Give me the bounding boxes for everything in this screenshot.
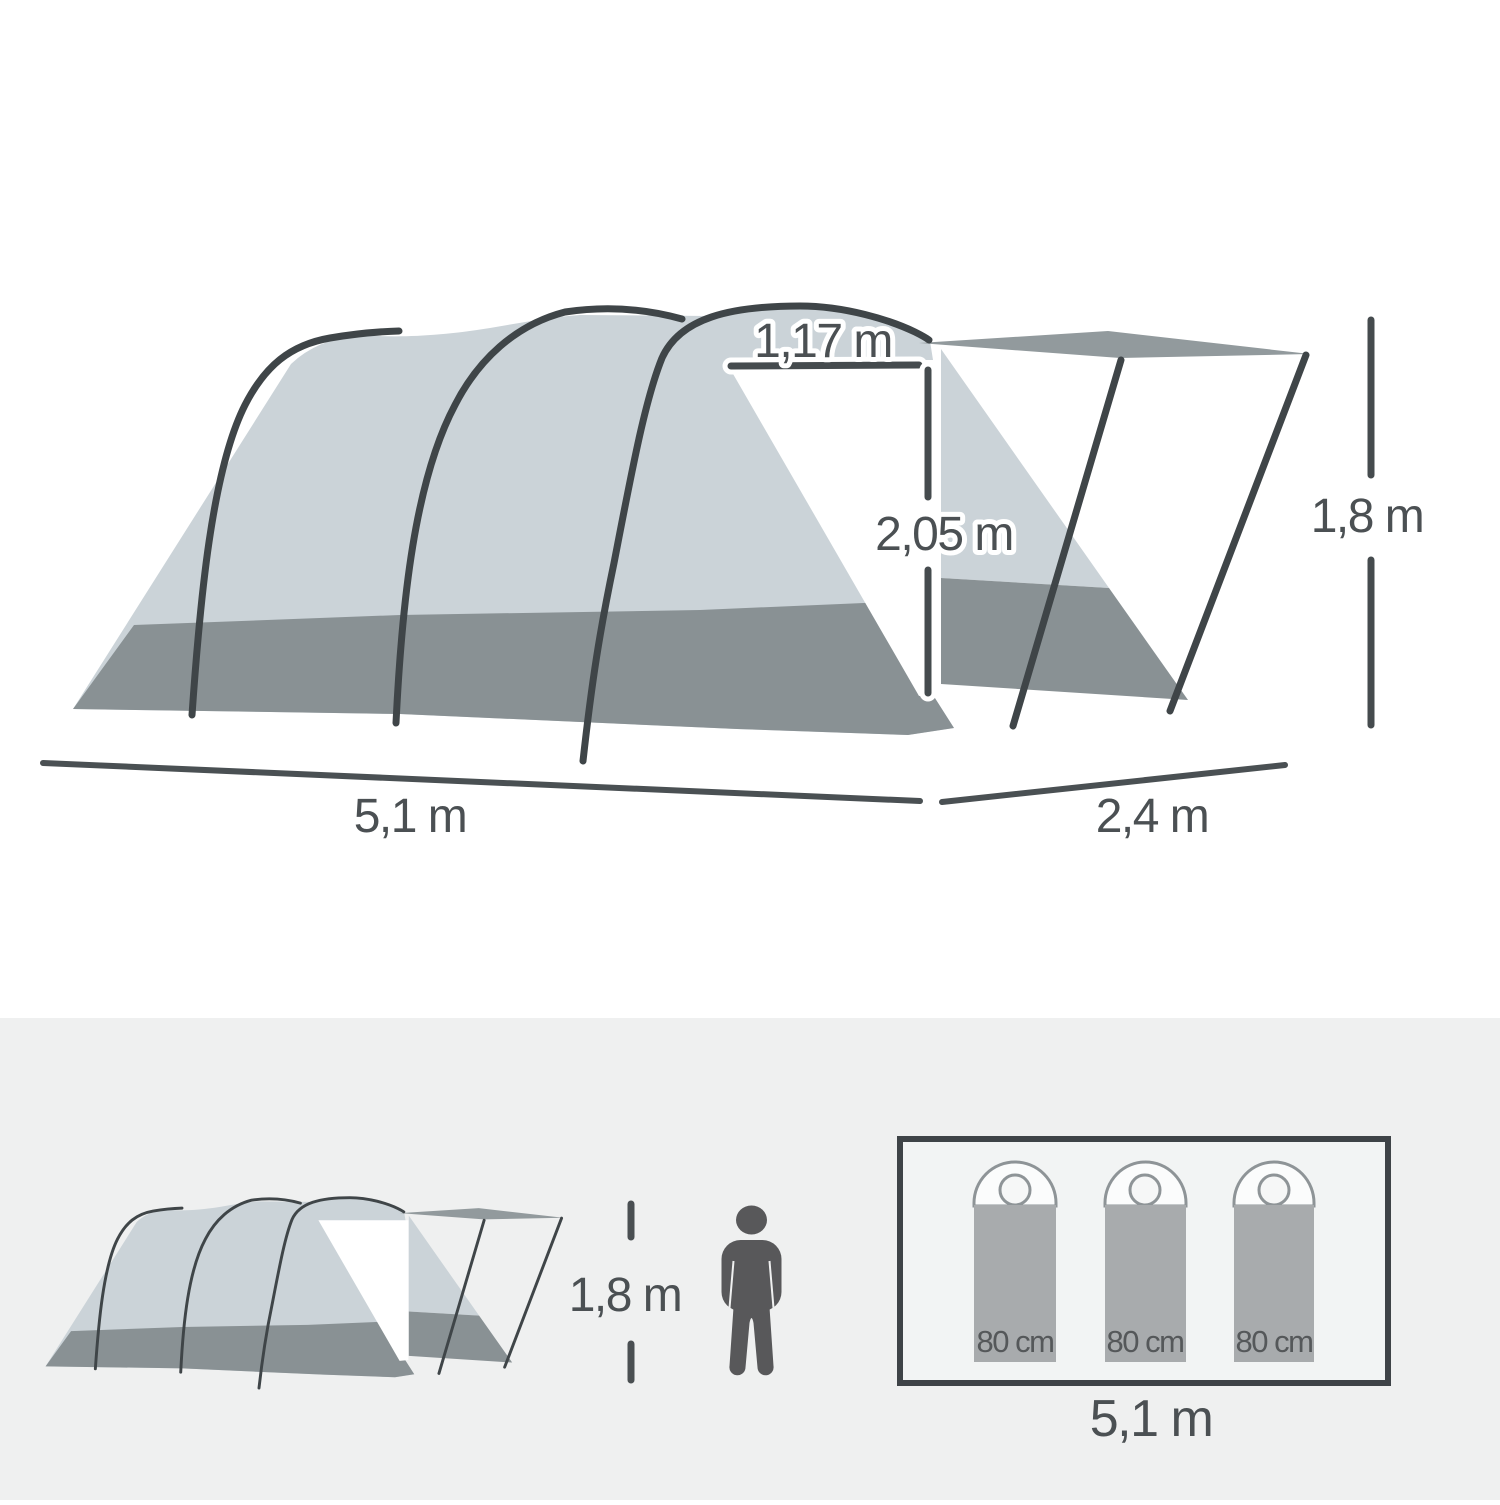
svg-text:1,8 m: 1,8 m: [569, 1269, 682, 1322]
svg-text:80 cm: 80 cm: [977, 1324, 1054, 1359]
svg-text:2,05 m: 2,05 m: [875, 508, 1013, 561]
svg-text:5,1 m: 5,1 m: [354, 790, 467, 843]
svg-text:1,8 m: 1,8 m: [1311, 490, 1424, 543]
svg-text:80 cm: 80 cm: [1236, 1324, 1313, 1359]
svg-text:2,4 m: 2,4 m: [1096, 790, 1209, 843]
svg-text:5,1 m: 5,1 m: [1090, 1390, 1213, 1448]
svg-text:1,17 m: 1,17 m: [754, 315, 892, 368]
svg-text:80 cm: 80 cm: [1107, 1324, 1184, 1359]
